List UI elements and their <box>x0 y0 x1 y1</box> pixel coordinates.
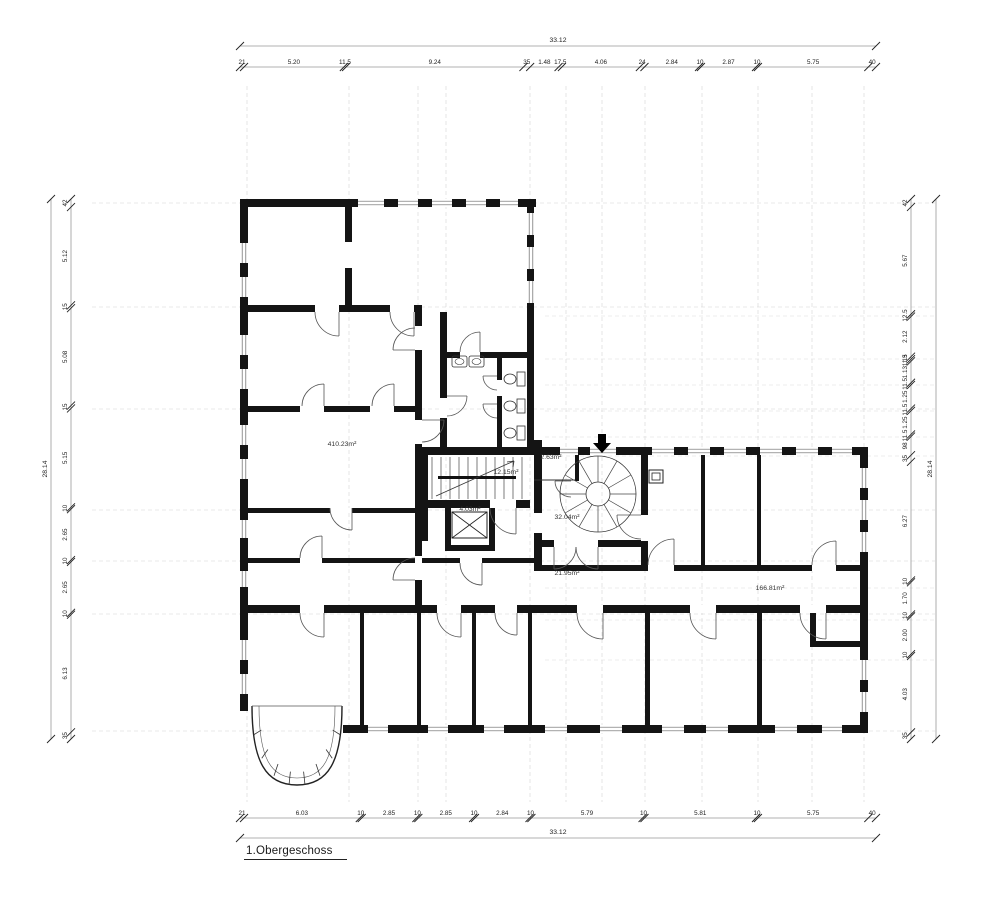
door-swing <box>812 541 836 565</box>
door-swing <box>300 536 322 558</box>
window <box>368 725 388 733</box>
wall <box>527 199 534 455</box>
spiral-stair-tread <box>608 475 631 488</box>
door-opening <box>345 242 352 268</box>
wall <box>360 613 364 725</box>
dim-label: 5.79 <box>581 810 594 817</box>
window <box>822 725 842 733</box>
door-opening <box>315 305 339 312</box>
dim-label: 2.00 <box>902 629 909 642</box>
dim-label: 40 <box>869 810 877 817</box>
window <box>240 674 248 694</box>
dim-label: 21 <box>239 59 247 66</box>
dim-label: 15 <box>62 303 69 311</box>
dim-label: 4.03 <box>902 688 909 701</box>
door-swing <box>555 481 571 497</box>
dim-label: 10 <box>753 810 761 817</box>
spiral-stair-tread <box>608 500 631 513</box>
window <box>240 425 248 445</box>
dim-label: 10 <box>414 810 422 817</box>
window <box>240 520 248 538</box>
dim-label: 4.06 <box>595 59 608 66</box>
bay-outer-wall <box>252 706 342 785</box>
dim-label: 2.85 <box>383 810 396 817</box>
window <box>527 247 535 269</box>
door-swing <box>690 613 716 639</box>
dim-label: 10 <box>753 59 761 66</box>
window <box>240 571 248 587</box>
dim-label: 11.5 <box>902 377 909 389</box>
room-area-label: 166.81m² <box>756 585 785 592</box>
dim-label: 5.67 <box>902 254 909 267</box>
dim-label: 1.48 <box>538 59 551 66</box>
door-opening <box>641 515 648 541</box>
spiral-stair-tread <box>579 461 592 484</box>
window <box>688 447 710 455</box>
door-opening <box>390 305 414 312</box>
door-swing <box>483 404 497 418</box>
dim-label: 6.03 <box>296 810 309 817</box>
wall <box>417 613 421 725</box>
room-area-label: 12.15m² <box>494 469 520 476</box>
wall <box>240 199 536 207</box>
dim-label: 10 <box>62 557 69 565</box>
window <box>500 199 518 207</box>
dim-label: 98 <box>902 442 909 450</box>
wall <box>420 447 534 455</box>
toilet-cistern <box>517 399 525 413</box>
window <box>760 447 782 455</box>
window <box>860 468 868 488</box>
door-opening <box>495 605 517 613</box>
windows <box>240 199 868 733</box>
dim-label: 11.5 <box>902 354 909 366</box>
dim-label: 10 <box>471 810 479 817</box>
door-opening <box>800 605 826 613</box>
dim-label: 2.87 <box>722 59 735 66</box>
window <box>860 500 868 520</box>
door-opening <box>300 605 324 613</box>
door-opening <box>460 352 480 358</box>
walls <box>240 199 868 733</box>
window <box>527 213 535 235</box>
dim-label: 35 <box>523 59 531 66</box>
room-area-label: 32.04m² <box>555 514 581 521</box>
toilet-cistern <box>517 426 525 440</box>
dim-label: 35 <box>62 732 69 740</box>
wall <box>534 440 542 513</box>
door-swing <box>437 613 461 637</box>
room-area-label: 4.03m² <box>459 506 481 513</box>
window <box>240 459 248 479</box>
door-swing <box>495 613 517 635</box>
floor-plan-canvas: 215.2011.59.24351.4817.54.06242.84102.87… <box>0 0 1000 898</box>
dim-label: 5.12 <box>62 250 69 263</box>
dim-label: 6.13 <box>62 667 69 680</box>
dim-label: 10 <box>640 810 648 817</box>
window <box>432 199 452 207</box>
window <box>466 199 486 207</box>
wall <box>528 613 532 725</box>
window <box>527 281 535 303</box>
wall <box>445 545 495 551</box>
dim-label: 10 <box>902 577 909 585</box>
wall <box>598 540 641 547</box>
window <box>240 277 248 297</box>
dim-label: 5.08 <box>62 350 69 363</box>
door-swing <box>372 384 394 406</box>
toilet-bowl <box>504 428 516 438</box>
dim-overall-label: 28.14 <box>927 460 934 477</box>
dim-label: 2.65 <box>62 581 69 594</box>
window <box>428 725 448 733</box>
window <box>600 725 622 733</box>
wall <box>240 558 536 563</box>
wall <box>445 505 451 551</box>
door-swing <box>617 515 641 539</box>
toilet-cistern <box>517 372 525 386</box>
door-opening <box>490 500 516 508</box>
dim-label: 11.5 <box>902 429 909 441</box>
dim-label: 5.75 <box>807 810 820 817</box>
dim-label: 42 <box>62 199 69 207</box>
dim-label: 1.25 <box>902 390 909 403</box>
wall <box>641 447 648 568</box>
window <box>484 725 504 733</box>
door-opening <box>370 406 394 412</box>
dim-label: 5.15 <box>62 451 69 464</box>
door-swing <box>315 312 339 336</box>
wall <box>534 540 554 547</box>
window <box>560 447 578 455</box>
dim-label: 1.70 <box>902 592 909 605</box>
window <box>358 199 384 207</box>
dim-label: 6.27 <box>902 514 909 527</box>
dim-overall-label: 33.12 <box>549 37 566 44</box>
window <box>545 725 567 733</box>
dim-label: 11.5 <box>339 59 351 66</box>
window <box>662 725 684 733</box>
door-opening <box>415 326 422 350</box>
dim-label: 2.84 <box>496 810 509 817</box>
room-area-label: 21.95m² <box>555 570 581 577</box>
sink-basin <box>472 359 481 365</box>
sink-basin <box>455 359 464 365</box>
door-swing <box>483 376 497 390</box>
dim-label: 17.5 <box>554 59 567 66</box>
wall <box>497 358 502 452</box>
dimension-chains: 215.2011.59.24351.4817.54.06242.84102.87… <box>42 37 940 842</box>
dim-label: 5.81 <box>694 810 707 817</box>
spiral-stair-newel <box>586 482 610 506</box>
dim-label: 5.20 <box>288 59 301 66</box>
room-area-label: 2.63m² <box>540 454 562 461</box>
door-swing <box>447 396 467 416</box>
dim-label: 35 <box>902 732 909 740</box>
toilet-bowl <box>504 374 516 384</box>
bay-mullion <box>262 750 268 759</box>
door-opening <box>440 398 447 418</box>
toilet-bowl <box>504 401 516 411</box>
door-opening <box>415 556 422 580</box>
door-opening <box>648 565 674 571</box>
window <box>832 447 852 455</box>
shaft-symbol <box>649 470 663 483</box>
window <box>652 447 674 455</box>
door-opening <box>300 558 322 563</box>
wall <box>240 605 868 613</box>
door-opening <box>460 558 482 563</box>
window <box>860 532 868 552</box>
wall <box>645 613 650 725</box>
door-opening <box>577 605 603 613</box>
shaft-symbol-inner <box>652 473 660 480</box>
dim-label: 10 <box>696 59 704 66</box>
dim-label: 2.65 <box>62 528 69 541</box>
door-opening <box>497 380 502 396</box>
dim-label: 12.5 <box>902 309 909 322</box>
door-opening <box>330 508 352 513</box>
wall <box>701 455 705 567</box>
window <box>706 725 728 733</box>
door-swing <box>460 332 480 352</box>
construction-grid <box>92 86 935 802</box>
dim-label: 10 <box>902 611 909 619</box>
door-opening <box>690 605 716 613</box>
door-opening <box>415 420 422 444</box>
dim-label: 21 <box>239 810 247 817</box>
window <box>240 335 248 355</box>
wall <box>810 641 866 647</box>
bay-mullion <box>326 750 332 759</box>
dim-label: 10 <box>62 504 69 512</box>
dim-label: 1.25 <box>902 416 909 429</box>
door-opening <box>812 565 836 571</box>
bay-mullion <box>289 772 290 785</box>
dim-label: 10 <box>62 610 69 618</box>
wall <box>240 508 417 513</box>
dim-label: 5.75 <box>807 59 820 66</box>
dim-label: 10 <box>902 651 909 659</box>
wall <box>860 447 868 733</box>
door-openings <box>300 242 836 613</box>
drawing-title: 1.Obergeschoss <box>244 845 347 860</box>
window <box>240 243 248 263</box>
dim-label: 24 <box>639 59 647 66</box>
dim-label: 35 <box>902 454 909 462</box>
dim-label: 2.85 <box>440 810 453 817</box>
window <box>398 199 418 207</box>
wall <box>472 613 476 725</box>
wall <box>420 447 428 541</box>
window <box>860 692 868 712</box>
window <box>240 369 248 389</box>
room-area-label: 410.23m² <box>328 441 357 448</box>
spiral-stair-tread <box>604 504 617 527</box>
dim-label: 40 <box>869 59 877 66</box>
window <box>724 447 746 455</box>
spiral-stair-tread <box>565 500 588 513</box>
dim-label: 10 <box>527 810 535 817</box>
door-swing <box>302 384 324 406</box>
window <box>775 725 797 733</box>
dim-overall-label: 28.14 <box>42 460 49 477</box>
wall <box>440 352 534 358</box>
wall <box>240 199 248 711</box>
door-swing <box>393 328 415 350</box>
door-opening <box>300 406 324 412</box>
wall <box>757 613 762 725</box>
floor-plan-sheet: 215.2011.59.24351.4817.54.06242.84102.87… <box>0 0 1000 898</box>
bay-mullion <box>304 772 305 785</box>
dim-label: 1.13 <box>902 365 909 378</box>
window <box>240 640 248 660</box>
door-opening <box>437 605 461 613</box>
window <box>796 447 818 455</box>
dim-label: 15 <box>62 403 69 411</box>
wall <box>757 455 761 567</box>
dim-label: 9.24 <box>429 59 442 66</box>
door-swing <box>577 613 603 639</box>
rounded-bay <box>252 706 342 785</box>
dim-overall-label: 33.12 <box>549 829 566 836</box>
bay-inner-line <box>259 706 335 778</box>
dim-label: 2.12 <box>902 330 909 343</box>
spiral-stair-tread <box>579 504 592 527</box>
dim-label: 10 <box>357 810 365 817</box>
spiral-stair-tread <box>604 461 617 484</box>
dim-label: 2.84 <box>666 59 679 66</box>
dim-label: 11.5 <box>902 403 909 415</box>
door-swing <box>300 613 324 637</box>
door-swing <box>460 563 482 585</box>
drawing-title-text: 1.Obergeschoss <box>246 845 333 857</box>
window <box>860 660 868 680</box>
dim-label: 42 <box>902 199 909 207</box>
